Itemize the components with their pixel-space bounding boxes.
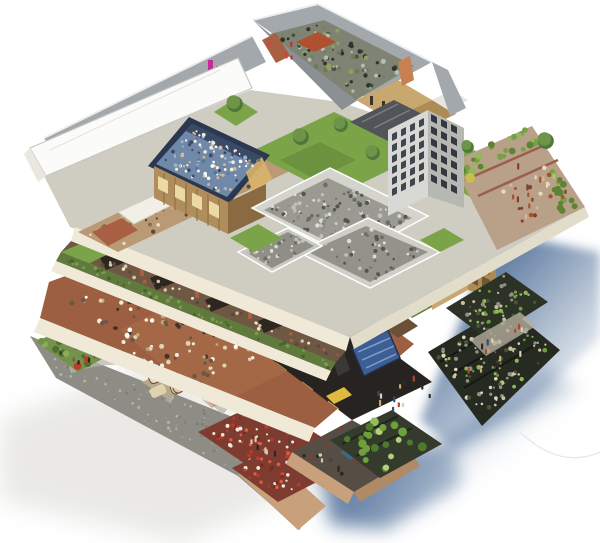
dining-crowd-mark bbox=[150, 318, 154, 322]
cobble-texture-mark bbox=[202, 409, 204, 411]
flowerbed-1-flowers-mark bbox=[247, 454, 251, 458]
kitchen-block-2-clutter-mark bbox=[392, 258, 395, 261]
pool-deck-crowd-mark bbox=[189, 161, 191, 163]
kitchen-block-3-clutter-mark bbox=[281, 261, 283, 263]
pool-deck-crowd-mark bbox=[216, 189, 219, 192]
terrace-crowd-mark bbox=[553, 174, 555, 179]
pool-deck-crowd-mark bbox=[233, 167, 237, 171]
pool-deck-crowd-mark bbox=[224, 187, 227, 190]
flowerbed-1-flowers-mark bbox=[238, 440, 241, 443]
courtyard-vegetation-mark bbox=[368, 87, 372, 91]
dining-crowd-mark bbox=[208, 366, 211, 369]
kitchen-block-1-clutter-mark bbox=[335, 204, 339, 208]
veg-terrace-lower-plants-mark bbox=[544, 343, 546, 345]
courtyard-vegetation-mark bbox=[323, 50, 326, 53]
dining-crowd-mark bbox=[130, 338, 135, 343]
cabbages-mark bbox=[383, 441, 390, 448]
cobble-texture-mark bbox=[147, 423, 149, 425]
cobble-texture-mark bbox=[96, 377, 99, 380]
kitchen-block-1-clutter-mark bbox=[306, 228, 310, 232]
kitchen-block-2-clutter-mark bbox=[358, 267, 362, 271]
pool-deck-crowd-mark bbox=[215, 145, 218, 148]
dining-crowd-mark bbox=[164, 320, 168, 324]
kitchen-block-2-clutter-mark bbox=[378, 244, 381, 247]
upper-strip-people-mark bbox=[132, 276, 136, 280]
kitchen-block-1-clutter-mark bbox=[277, 206, 279, 208]
kitchen-block-3-clutter-mark bbox=[294, 249, 296, 251]
kitchen-block-3-clutter-mark bbox=[283, 239, 286, 242]
kitchen-block-3-clutter-mark bbox=[263, 252, 267, 256]
kitchen-block-1-clutter-mark bbox=[284, 215, 286, 217]
flowerbed-2-flowers-mark bbox=[286, 473, 290, 477]
upper-strip-people-mark bbox=[324, 352, 327, 355]
cobble-texture-mark bbox=[104, 383, 107, 386]
courtyard-red-figures-mark bbox=[290, 42, 292, 48]
green-roof-texture-mark bbox=[209, 315, 211, 317]
upper-strip-people-mark bbox=[337, 354, 339, 356]
terrace-crowd-mark bbox=[528, 185, 532, 189]
terrace-hedges-mark bbox=[521, 147, 526, 152]
dining-crowd-mark bbox=[192, 342, 195, 345]
basement-figures-mark bbox=[321, 458, 323, 462]
terrace-crowd-mark bbox=[547, 173, 552, 178]
kitchen-block-1-clutter-mark bbox=[348, 208, 351, 211]
kitchen-block-3-clutter-mark bbox=[267, 255, 270, 258]
green-roof-texture-mark bbox=[143, 289, 146, 292]
cobble-texture-mark bbox=[167, 426, 170, 429]
veg-terrace-lower-plants-mark bbox=[495, 399, 497, 401]
dining-crowd-mark bbox=[99, 299, 103, 303]
kitchen-block-1-clutter-mark bbox=[316, 214, 319, 217]
pool-deck-crowd-mark bbox=[194, 133, 196, 135]
pool-deck-crowd-mark bbox=[173, 154, 175, 156]
robed-crowd-right-mark bbox=[499, 356, 501, 362]
cobble-texture-mark bbox=[59, 373, 62, 376]
flowerbed-2-flowers-mark bbox=[275, 485, 279, 489]
veg-terrace-lower-plants-mark bbox=[542, 348, 547, 353]
terrace-crowd-mark bbox=[517, 163, 519, 169]
cobble-texture-mark bbox=[203, 412, 206, 415]
green-roof-texture-mark bbox=[149, 296, 152, 299]
kitchen-block-2-clutter-mark bbox=[416, 250, 419, 253]
courtyard-vegetation-mark bbox=[351, 55, 356, 60]
green-roof-texture-mark bbox=[75, 262, 78, 265]
veg-terrace-lower-plants-mark bbox=[533, 341, 536, 344]
pool-deck-crowd-mark bbox=[219, 146, 223, 150]
cabbages-mark bbox=[418, 442, 427, 451]
flowerbed-figures-mark bbox=[266, 449, 268, 454]
cabbages-mark bbox=[383, 465, 389, 471]
courtyard-vegetation-mark bbox=[287, 37, 290, 40]
cobble-texture-mark bbox=[175, 415, 178, 418]
courtyard-vegetation-mark bbox=[381, 59, 386, 64]
kitchen-block-2-clutter-mark bbox=[347, 239, 351, 243]
upper-strip-people-mark bbox=[161, 286, 164, 289]
veg-terrace-lower-plants-mark bbox=[459, 349, 462, 352]
robed-crowd-right-mark bbox=[521, 327, 523, 332]
kitchen-block-2-clutter-mark bbox=[383, 241, 386, 244]
kitchen-block-2-clutter-mark bbox=[369, 228, 373, 232]
cobble-texture-mark bbox=[116, 399, 118, 401]
courtyard-red-figures-mark bbox=[267, 42, 269, 48]
cobble-texture-mark bbox=[184, 421, 186, 423]
green-roof-texture-mark bbox=[120, 276, 124, 280]
kitchen-block-1-clutter-mark bbox=[312, 199, 315, 202]
pool-deck-crowd-mark bbox=[183, 165, 185, 167]
dining-crowd-mark bbox=[146, 347, 149, 350]
kitchen-block-2-clutter-mark bbox=[373, 255, 377, 259]
kitchen-block-2-clutter-mark bbox=[362, 268, 366, 272]
green-roof-texture-mark bbox=[280, 346, 283, 349]
kitchen-block-2-clutter-mark bbox=[380, 235, 384, 239]
upper-strip-people-mark bbox=[113, 262, 116, 265]
kitchen-block-2-clutter-mark bbox=[409, 247, 413, 251]
flowerbed-2-flowers-mark bbox=[267, 485, 269, 487]
dining-crowd-mark bbox=[248, 358, 252, 362]
kitchen-block-1-clutter-mark bbox=[271, 208, 274, 211]
veg-terrace-lower-plants-mark bbox=[494, 372, 497, 375]
plate-shops-clutter-mark bbox=[89, 234, 91, 236]
courtyard-vegetation-mark bbox=[362, 69, 364, 71]
pool-deck-crowd-mark bbox=[224, 168, 227, 171]
kitchen-block-1-clutter-mark bbox=[360, 194, 363, 197]
veg-terrace-lower-plants-mark bbox=[464, 340, 468, 344]
cobble-texture-mark bbox=[69, 375, 72, 378]
terrace-crowd-mark bbox=[542, 176, 544, 181]
pool-deck-crowd-mark bbox=[225, 145, 228, 148]
veg-terrace-upper-plants-mark bbox=[519, 292, 521, 294]
veg-terrace-lower-plants-mark bbox=[500, 362, 502, 364]
terrace-crowd-mark bbox=[509, 184, 512, 187]
pool-deck-crowd-mark bbox=[198, 151, 201, 154]
veg-terrace-upper-plants-mark bbox=[496, 302, 500, 306]
dining-crowd-mark bbox=[145, 318, 149, 322]
terrace-crowd-mark bbox=[501, 189, 505, 193]
terrace-crowd-mark bbox=[542, 166, 547, 171]
kitchen-block-1-clutter-mark bbox=[300, 212, 302, 214]
dining-crowd-mark bbox=[175, 353, 179, 357]
kitchen-block-1-clutter-mark bbox=[321, 228, 324, 231]
veg-terrace-lower-plants-mark bbox=[493, 387, 495, 389]
upper-strip-people-mark bbox=[109, 263, 113, 267]
kitchen-block-3-clutter-mark bbox=[256, 251, 259, 254]
left-garden-crowd-mark bbox=[59, 350, 61, 354]
kitchen-block-3-clutter-mark bbox=[267, 261, 269, 263]
pool-deck-crowd-mark bbox=[246, 162, 249, 165]
flowerbed-2-flowers-mark bbox=[286, 451, 290, 455]
kitchen-block-1-clutter-mark bbox=[331, 211, 335, 215]
kitchen-block-1-clutter-mark bbox=[360, 210, 362, 212]
pool-deck-crowd-mark bbox=[204, 150, 207, 153]
kitchen-block-1-clutter-mark bbox=[319, 234, 323, 238]
kitchen-block-1-clutter-mark bbox=[347, 191, 350, 194]
robed-crowd-center-mark bbox=[398, 402, 400, 407]
kitchen-block-3-clutter-mark bbox=[270, 249, 273, 252]
veg-terrace-upper-plants-mark bbox=[514, 290, 517, 293]
kitchen-block-2-clutter-mark bbox=[385, 250, 388, 253]
veg-terrace-upper-plants-mark bbox=[524, 291, 528, 295]
pool-deck-crowd-mark bbox=[248, 159, 250, 161]
pool-deck-crowd-mark bbox=[202, 159, 206, 163]
kitchen-block-1-clutter-mark bbox=[323, 203, 326, 206]
veg-terrace-lower-plants-mark bbox=[493, 366, 495, 368]
upper-strip-people-mark bbox=[304, 346, 307, 349]
terrace-hedges-right-mark bbox=[569, 197, 575, 203]
pool-deck-crowd-mark bbox=[230, 156, 233, 159]
green-roof-texture-mark bbox=[233, 328, 235, 330]
green-roof-texture-mark bbox=[220, 321, 223, 324]
cobble-texture-mark bbox=[160, 425, 162, 427]
kitchen-block-3-clutter-mark bbox=[291, 245, 293, 247]
kitchen-block-1-clutter-mark bbox=[403, 215, 407, 219]
flowerbed-2-flowers-mark bbox=[256, 466, 260, 470]
dining-crowd-mark bbox=[186, 341, 191, 346]
veg-terrace-upper-plants-mark bbox=[519, 307, 523, 311]
terrace-crowd-mark bbox=[539, 177, 541, 183]
cabbages-mark bbox=[388, 454, 394, 460]
green-roof-texture-mark bbox=[326, 366, 329, 369]
flowerbed-1-flowers-mark bbox=[212, 432, 215, 435]
pool-deck-crowd-mark bbox=[234, 174, 236, 176]
flowerbed-2-flowers-mark bbox=[256, 456, 260, 460]
upper-strip-people-mark bbox=[254, 322, 257, 325]
dining-crowd-mark bbox=[203, 362, 206, 365]
robed-crowd-right-mark bbox=[514, 329, 516, 333]
basement-figures-mark bbox=[302, 454, 305, 457]
terrace-hedges-right-mark bbox=[560, 181, 567, 188]
green-roof-texture-mark bbox=[211, 317, 215, 321]
veg-terrace-lower-plants-mark bbox=[436, 355, 441, 360]
kitchen-block-3-clutter-mark bbox=[277, 241, 281, 245]
scene-svg: Isometric cutaway of a multi-level mixed… bbox=[0, 0, 600, 543]
pool-deck-crowd-mark bbox=[209, 153, 213, 157]
plate-shops-clutter-mark bbox=[122, 242, 125, 245]
veg-terrace-lower-plants-mark bbox=[499, 385, 503, 389]
pool-deck-crowd-mark bbox=[224, 157, 227, 160]
cobble-texture-mark bbox=[108, 390, 111, 393]
pool-deck-crowd-mark bbox=[243, 156, 247, 160]
pool-deck-crowd-mark bbox=[211, 164, 215, 168]
robed-crowd-right-mark bbox=[491, 338, 493, 343]
veg-terrace-upper-plants-mark bbox=[505, 305, 507, 307]
courtyard-vegetation-mark bbox=[323, 62, 327, 66]
veg-terrace-lower-plants-mark bbox=[508, 372, 512, 376]
courtyard-vegetation-mark bbox=[332, 45, 335, 48]
green-roof-texture-mark bbox=[103, 271, 106, 274]
terrace-hedges-mark bbox=[516, 133, 522, 139]
veg-terrace-upper-plants-mark bbox=[502, 275, 505, 278]
left-garden-bushes-mark bbox=[63, 350, 69, 356]
flowerbed-2-flowers-mark bbox=[285, 480, 287, 482]
kitchen-block-1-clutter-mark bbox=[293, 220, 295, 222]
upper-strip-people-mark bbox=[240, 312, 243, 315]
dining-crowd-mark bbox=[159, 344, 164, 349]
pool-deck-crowd-mark bbox=[219, 173, 222, 176]
cabbages-mark bbox=[379, 424, 386, 431]
kitchen-block-1-clutter-mark bbox=[335, 198, 337, 200]
flowerbed-1-flowers-mark bbox=[229, 438, 232, 441]
courtyard-vegetation-mark bbox=[383, 76, 385, 78]
courtyard-vegetation-mark bbox=[337, 51, 341, 55]
dining-crowd-mark bbox=[202, 355, 205, 358]
cobble-texture-mark bbox=[169, 430, 171, 432]
robed-crowd-center-mark bbox=[377, 391, 379, 396]
green-roof-texture-mark bbox=[68, 261, 70, 263]
terrace-crowd-mark bbox=[561, 195, 565, 199]
green-roof-texture-mark bbox=[179, 306, 182, 309]
green-roof-texture-mark bbox=[282, 341, 286, 345]
kitchen-block-1-clutter-mark bbox=[333, 208, 336, 211]
pool-deck-crowd-mark bbox=[218, 169, 221, 172]
courtyard-vegetation-mark bbox=[350, 80, 353, 83]
dining-crowd-mark bbox=[136, 306, 140, 310]
kitchen-block-2-clutter-mark bbox=[358, 259, 360, 261]
basement-figures-mark bbox=[340, 472, 344, 476]
dining-crowd-mark bbox=[189, 336, 192, 339]
dining-crowd-mark bbox=[121, 340, 125, 344]
veg-terrace-upper-plants-mark bbox=[478, 309, 481, 312]
terrace-crowd-mark bbox=[536, 206, 539, 209]
green-roof-texture-mark bbox=[201, 316, 204, 319]
veg-terrace-upper-plants-mark bbox=[481, 302, 485, 306]
flowerbed-2-flowers-mark bbox=[282, 484, 285, 487]
upper-strip-people-mark bbox=[290, 339, 293, 342]
cobble-texture-mark bbox=[169, 406, 171, 408]
pool-deck-crowd-mark bbox=[227, 172, 229, 174]
veg-terrace-upper-plants-mark bbox=[476, 311, 480, 315]
flowerbed-2-flowers-mark bbox=[253, 472, 256, 475]
terrace-crowd-mark bbox=[525, 214, 527, 219]
flowerbed-figures-mark bbox=[255, 436, 257, 442]
terrace-crowd-mark bbox=[538, 192, 542, 196]
upper-strip-people-mark bbox=[152, 282, 155, 285]
cobble-texture-mark bbox=[54, 358, 57, 361]
robed-crowd-right-mark bbox=[468, 354, 470, 359]
courtyard-vegetation-mark bbox=[366, 68, 369, 71]
cabbages-mark bbox=[366, 423, 374, 431]
pool-deck-crowd-mark bbox=[178, 164, 181, 167]
terrace-hedges-mark bbox=[471, 158, 475, 162]
kitchen-block-1-clutter-mark bbox=[317, 199, 320, 202]
flowerbed-1-flowers-mark bbox=[270, 438, 273, 441]
green-roof-texture-mark bbox=[82, 266, 85, 269]
basement-figures-mark bbox=[329, 458, 333, 462]
veg-terrace-lower-plants-mark bbox=[462, 335, 466, 339]
flowerbed-2-flowers-mark bbox=[249, 477, 251, 479]
dining-crowd-mark bbox=[125, 333, 130, 338]
flowerbed-2-flowers-mark bbox=[270, 466, 274, 470]
robed-crowd-right-mark bbox=[497, 362, 499, 367]
pool-deck-crowd-mark bbox=[205, 175, 207, 177]
pool-deck-crowd-mark bbox=[189, 140, 193, 144]
terrace-hedges-mark bbox=[503, 148, 508, 153]
veg-terrace-upper-plants-mark bbox=[514, 300, 518, 304]
cabbages-mark bbox=[396, 437, 402, 443]
basement-figures-mark bbox=[340, 426, 342, 431]
veg-terrace-upper-plants-mark bbox=[486, 299, 490, 303]
dining-crowd-mark bbox=[166, 360, 171, 365]
upper-strip-people-mark bbox=[258, 324, 261, 327]
courtyard-vegetation-mark bbox=[348, 74, 350, 76]
green-roof-texture-mark bbox=[148, 292, 151, 295]
basement-figures-mark bbox=[324, 437, 326, 442]
kitchen-block-1-clutter-mark bbox=[321, 193, 324, 196]
pool-deck-crowd-mark bbox=[209, 141, 211, 143]
courtyard-vegetation-mark bbox=[378, 75, 381, 78]
green-roof-texture-mark bbox=[64, 254, 67, 257]
kitchen-block-2-clutter-mark bbox=[407, 258, 410, 261]
veg-terrace-upper-plants-mark bbox=[469, 306, 471, 308]
cabbages-mark bbox=[363, 457, 369, 463]
veg-terrace-upper-plants-mark bbox=[484, 311, 487, 314]
robed-crowd-right-mark bbox=[481, 343, 483, 349]
dining-crowd-mark bbox=[116, 308, 119, 311]
veg-terrace-lower-plants-mark bbox=[508, 346, 512, 350]
flowerbed-2-flowers-mark bbox=[259, 481, 262, 484]
cobble-texture-mark bbox=[147, 413, 149, 415]
kitchen-block-2-clutter-mark bbox=[336, 258, 340, 262]
flowerbed-1-flowers-mark bbox=[226, 424, 230, 428]
kitchen-block-2-clutter-mark bbox=[385, 270, 388, 273]
flowerbed-1-flowers-mark bbox=[256, 428, 258, 430]
pool-deck-crowd-mark bbox=[257, 159, 260, 162]
cobble-texture-mark bbox=[179, 416, 181, 418]
courtyard-vegetation-mark bbox=[336, 41, 340, 45]
flowerbed-figures-mark bbox=[274, 451, 276, 457]
green-roof-texture-mark bbox=[169, 296, 172, 299]
kitchen-block-1-clutter-mark bbox=[352, 189, 355, 192]
pool-deck-crowd-mark bbox=[165, 159, 167, 161]
kitchen-block-2-clutter-mark bbox=[372, 259, 375, 262]
green-roof-texture-mark bbox=[72, 263, 75, 266]
robed-crowd-center-mark bbox=[393, 396, 395, 402]
veg-terrace-lower-plants-mark bbox=[506, 377, 509, 380]
flowerbed-1-flowers-mark bbox=[278, 440, 281, 443]
veg-terrace-lower-plants-mark bbox=[441, 353, 445, 357]
kitchen-block-1-clutter-mark bbox=[361, 214, 365, 218]
kitchen-block-1-clutter-mark bbox=[272, 211, 274, 213]
flowerbed-figures-mark bbox=[250, 439, 252, 444]
kitchen-block-2-clutter-mark bbox=[362, 239, 365, 242]
robed-crowd-center-mark bbox=[380, 393, 382, 398]
dining-crowd-mark bbox=[132, 315, 135, 318]
green-roof-texture-mark bbox=[107, 277, 111, 281]
robed-crowd-right-mark bbox=[485, 349, 487, 354]
terrace-hedges-right-mark bbox=[552, 187, 557, 192]
pool-deck-crowd-mark bbox=[245, 165, 247, 167]
cobble-texture-mark bbox=[131, 402, 134, 405]
veg-terrace-lower-plants-mark bbox=[441, 348, 444, 351]
kitchen-block-1-clutter-mark bbox=[271, 205, 274, 208]
pool-deck-crowd-mark bbox=[223, 151, 226, 154]
kitchen-block-2-clutter-mark bbox=[369, 263, 373, 267]
veg-terrace-upper-plants-mark bbox=[483, 327, 486, 330]
cobble-texture-mark bbox=[63, 366, 66, 369]
kitchen-block-2-clutter-mark bbox=[398, 264, 401, 267]
green-roof-texture-mark bbox=[216, 320, 219, 323]
flowerbed-2-flowers-mark bbox=[286, 446, 289, 449]
cobble-texture-mark bbox=[165, 417, 167, 419]
courtyard-vegetation-mark bbox=[322, 59, 325, 62]
kitchen-block-3-clutter-mark bbox=[263, 256, 267, 260]
dining-crowd-mark bbox=[188, 349, 191, 352]
flowerbed-1-flowers-mark bbox=[249, 450, 252, 453]
flowerbed-1-flowers-mark bbox=[228, 443, 232, 447]
flowerbed-figures-mark bbox=[288, 438, 290, 444]
flowerbed-2-flowers-mark bbox=[277, 462, 281, 466]
kitchen-block-2-clutter-mark bbox=[325, 243, 328, 246]
kitchen-block-1-clutter-mark bbox=[352, 198, 356, 202]
